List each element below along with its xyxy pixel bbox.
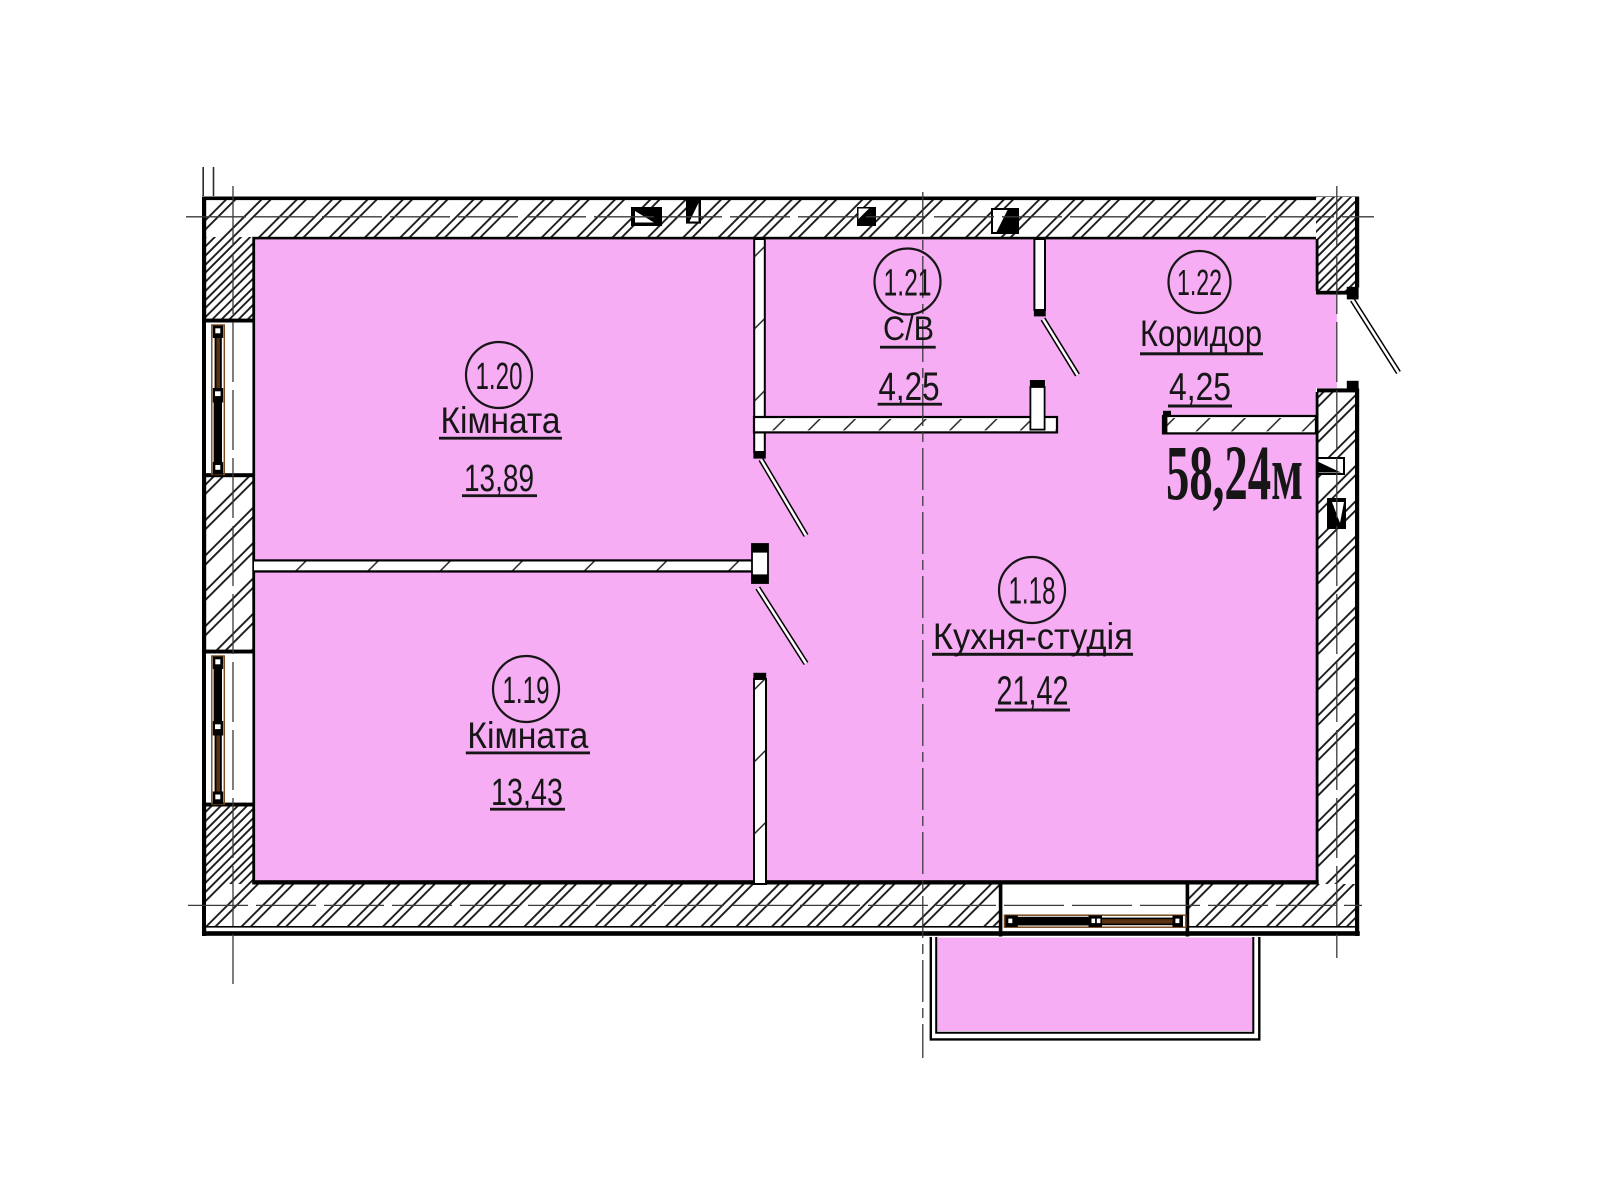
svg-text:13,89: 13,89	[464, 458, 534, 500]
svg-text:Кімната: Кімната	[467, 715, 588, 756]
svg-text:Коридор: Коридор	[1140, 313, 1262, 354]
svg-text:1.20: 1.20	[476, 356, 523, 398]
svg-text:1.19: 1.19	[503, 670, 550, 712]
svg-text:С/В: С/В	[883, 310, 934, 348]
svg-text:1.21: 1.21	[884, 262, 932, 304]
svg-text:21,42: 21,42	[997, 668, 1069, 714]
svg-text:13,43: 13,43	[491, 772, 563, 814]
svg-text:Кімната: Кімната	[441, 400, 561, 441]
svg-text:4,25: 4,25	[879, 365, 940, 409]
svg-text:4,25: 4,25	[1169, 366, 1231, 409]
svg-text:Кухня-студія: Кухня-студія	[933, 616, 1133, 657]
svg-text:58,24м: 58,24м	[1166, 429, 1303, 516]
svg-text:1.18: 1.18	[1009, 571, 1056, 613]
svg-text:1.22: 1.22	[1177, 262, 1222, 303]
